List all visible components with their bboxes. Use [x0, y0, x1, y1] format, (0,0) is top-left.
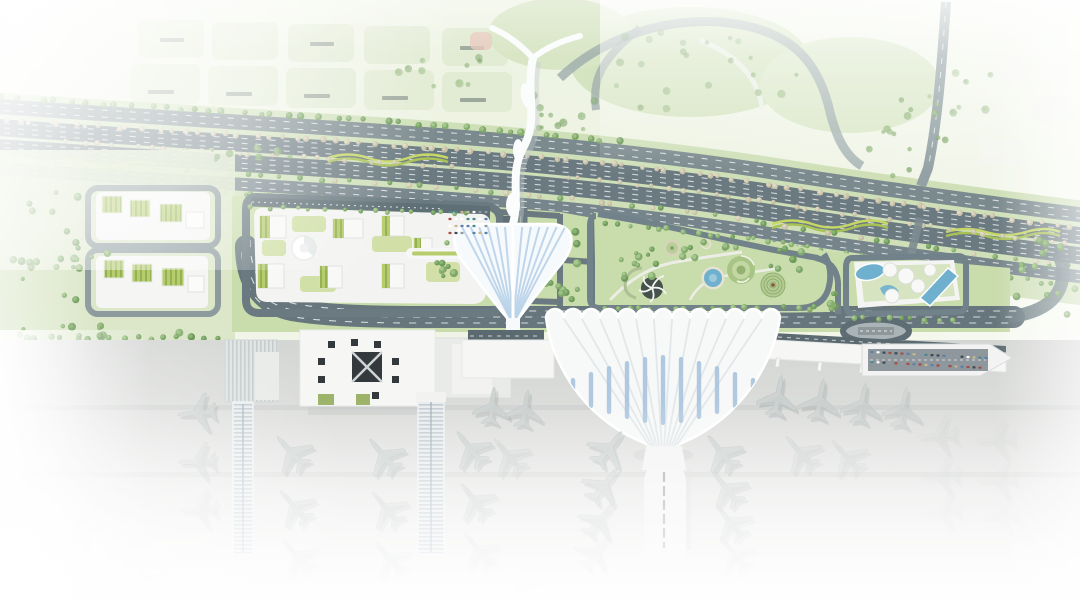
tree-highlight [746, 197, 749, 200]
tree-highlight [549, 113, 552, 116]
tree-highlight [576, 176, 578, 178]
tree-highlight [647, 225, 650, 228]
car [967, 366, 970, 368]
car [931, 354, 934, 356]
car [967, 356, 970, 358]
tree-highlight [597, 178, 600, 181]
tree-highlight [591, 98, 596, 103]
car [943, 365, 946, 367]
car [871, 351, 874, 353]
tree-highlight [971, 212, 974, 215]
car [883, 362, 886, 364]
tree-highlight [697, 190, 700, 193]
tree-highlight [853, 212, 856, 215]
tree-highlight [681, 189, 684, 192]
tree-highlight [860, 315, 863, 318]
tree-highlight [859, 196, 863, 200]
tree-highlight [972, 252, 975, 255]
car [883, 352, 886, 354]
tree-highlight [876, 317, 879, 320]
car [949, 365, 952, 367]
tree-highlight [803, 207, 806, 210]
tree-highlight [572, 134, 576, 138]
tree-highlight [834, 193, 837, 196]
pool-center [709, 274, 717, 282]
tree-highlight [755, 219, 758, 222]
car [877, 351, 880, 353]
tree-highlight [574, 260, 579, 265]
tree-highlight [778, 248, 781, 251]
car [907, 363, 910, 365]
tree-highlight [972, 229, 975, 232]
tree-highlight [771, 200, 774, 203]
tree-highlight [799, 187, 802, 190]
car [919, 353, 922, 355]
tree-highlight [578, 113, 583, 118]
tree-highlight [597, 138, 600, 141]
car [889, 362, 892, 364]
tree-highlight [781, 240, 784, 243]
car [955, 355, 958, 357]
tree-highlight [884, 239, 888, 243]
car [949, 355, 952, 357]
tree-highlight [188, 334, 192, 338]
tree-highlight [852, 316, 855, 319]
tree-highlight [887, 315, 891, 319]
tree-highlight [450, 270, 455, 275]
tree-highlight [555, 157, 558, 160]
tree-highlight [667, 186, 670, 189]
tree-highlight [744, 178, 747, 181]
tree-highlight [948, 228, 951, 231]
car [979, 357, 982, 359]
tree-highlight [832, 230, 836, 234]
tree-highlight [581, 127, 584, 130]
tree-highlight [632, 261, 635, 264]
tree-highlight [795, 205, 798, 208]
tree-highlight [603, 221, 606, 224]
tree-highlight [790, 256, 795, 261]
tree-highlight [567, 176, 570, 179]
tree-highlight [556, 283, 560, 287]
tree-highlight [688, 245, 691, 248]
tree-highlight [635, 251, 637, 253]
tree-highlight [161, 335, 165, 339]
tree-highlight [769, 264, 772, 267]
car [961, 356, 964, 358]
tree-highlight [716, 234, 719, 237]
car [901, 362, 904, 364]
tree-highlight [936, 207, 939, 210]
tree-highlight [708, 233, 711, 236]
tree-highlight [176, 329, 181, 334]
tree-highlight [681, 247, 685, 251]
tree-highlight [918, 203, 922, 207]
car [937, 354, 940, 356]
tree-highlight [583, 160, 586, 163]
tree-highlight [608, 202, 611, 205]
mound-top [737, 266, 746, 275]
tree-highlight [685, 209, 688, 212]
car [979, 367, 982, 369]
tree-highlight [757, 197, 760, 200]
tree-highlight [807, 307, 811, 311]
tree-highlight [646, 253, 648, 255]
tree-highlight [746, 236, 749, 239]
tree-highlight [983, 214, 986, 217]
tree-highlight [726, 195, 729, 198]
car [913, 363, 916, 365]
tree-highlight [831, 292, 834, 295]
tree-highlight [731, 235, 734, 238]
tree-highlight [796, 267, 800, 271]
tree-highlight [887, 217, 890, 220]
tree-highlight [781, 304, 784, 307]
tree-highlight [723, 244, 727, 248]
tree-highlight [657, 227, 660, 230]
tree-highlight [555, 123, 559, 127]
tree-highlight [572, 229, 577, 234]
garden-center [670, 246, 674, 250]
tree-highlight [908, 222, 911, 225]
tree-highlight [544, 132, 548, 136]
tree-highlight [599, 200, 603, 204]
tree-highlight [752, 236, 755, 239]
tree-highlight [789, 242, 792, 245]
tree-highlight [527, 193, 530, 196]
tree-highlight [553, 133, 557, 137]
tree-highlight [806, 244, 809, 247]
garden-center-dot [771, 283, 775, 287]
tree-highlight [696, 231, 699, 234]
tree-highlight [922, 318, 926, 322]
tree-highlight [866, 216, 869, 219]
tree-highlight [950, 318, 953, 321]
tree-highlight [801, 227, 804, 230]
car [925, 364, 928, 366]
car [985, 367, 988, 369]
car [973, 356, 976, 358]
tree-highlight [980, 232, 983, 235]
tree-highlight [736, 216, 739, 219]
tree-highlight [761, 221, 765, 225]
tree-highlight [766, 182, 769, 185]
tree-highlight [733, 245, 737, 249]
tree-highlight [616, 306, 619, 309]
tree-highlight [844, 194, 848, 198]
tree-highlight [926, 244, 929, 247]
tree-highlight [649, 184, 652, 187]
car [973, 366, 976, 368]
tree-highlight [701, 239, 705, 243]
tree-highlight [859, 236, 862, 239]
tree-highlight [713, 213, 716, 216]
car [925, 354, 928, 356]
tree-highlight [692, 255, 696, 259]
tree-highlight [569, 296, 573, 300]
tree-highlight [635, 184, 637, 186]
car [937, 364, 940, 366]
tree-highlight [622, 272, 625, 275]
tree-highlight [812, 304, 815, 307]
car [871, 361, 874, 363]
tree-highlight [574, 241, 579, 246]
tree-highlight [539, 154, 542, 157]
tree-highlight [681, 230, 684, 233]
tree-highlight [441, 274, 444, 277]
tree-highlight [575, 287, 578, 290]
tree-highlight [650, 247, 653, 250]
tree-highlight [98, 326, 101, 329]
tree-highlight [775, 266, 779, 270]
tree-highlight [538, 195, 541, 198]
tree-highlight [563, 157, 566, 160]
car [913, 353, 916, 355]
tree-highlight [782, 224, 786, 228]
tree-highlight [629, 224, 632, 227]
tree-highlight [818, 190, 822, 194]
tree-highlight [840, 213, 843, 216]
tree-highlight [929, 223, 931, 225]
tree-highlight [874, 238, 878, 242]
tree-highlight [648, 273, 653, 278]
tree-highlight [558, 196, 562, 200]
tree-highlight [815, 207, 818, 210]
tree-highlight [680, 253, 684, 257]
tree-highlight [990, 214, 993, 217]
car [877, 361, 880, 363]
parking-deck [862, 344, 1012, 376]
car [907, 353, 910, 355]
tree-highlight [615, 222, 618, 225]
car [895, 362, 898, 364]
tree-highlight [957, 210, 961, 214]
tree-highlight [619, 258, 622, 261]
tree-highlight [890, 201, 893, 204]
tree-highlight [825, 231, 829, 235]
tree-highlight [772, 184, 776, 188]
car [955, 365, 958, 367]
tree-highlight [938, 318, 941, 321]
tree-highlight [729, 178, 732, 181]
tree-highlight [588, 136, 592, 140]
west-pier [462, 340, 554, 378]
tree-highlight [784, 185, 788, 189]
car [961, 366, 964, 368]
car [985, 357, 988, 359]
tree-highlight [934, 246, 938, 250]
car [943, 355, 946, 357]
tree-highlight [636, 305, 639, 308]
car [919, 363, 922, 365]
tree-highlight [539, 113, 542, 116]
tree-highlight [952, 248, 955, 251]
tree-highlight [693, 210, 696, 213]
tree-highlight [560, 119, 565, 124]
tree-highlight [630, 204, 634, 208]
tree-highlight [876, 198, 880, 202]
tree-highlight [651, 206, 654, 209]
tree-highlight [558, 290, 562, 294]
tree-highlight [216, 336, 219, 339]
tree-highlight [828, 302, 831, 305]
tree-highlight [797, 305, 801, 309]
tree-highlight [901, 201, 904, 204]
tree-highlight [715, 192, 718, 195]
tree-highlight [636, 263, 639, 266]
tree-highlight [908, 316, 911, 319]
airport-masterplan-rendering: Airport masterplan aerial rendering [0, 0, 1080, 600]
tree-highlight [766, 239, 769, 242]
tree-highlight [618, 180, 621, 183]
tree-highlight [653, 261, 657, 265]
tree-highlight [201, 336, 204, 339]
tree-highlight [922, 205, 925, 208]
tree-highlight [741, 304, 745, 308]
tree-highlight [900, 316, 903, 319]
tree-highlight [664, 225, 668, 229]
car [889, 352, 892, 354]
car [931, 364, 934, 366]
tree-highlight [658, 205, 661, 208]
tree-highlight [570, 196, 573, 199]
tree-highlight [782, 246, 786, 250]
tree-highlight [798, 249, 802, 253]
car [895, 352, 898, 354]
car [901, 352, 904, 354]
